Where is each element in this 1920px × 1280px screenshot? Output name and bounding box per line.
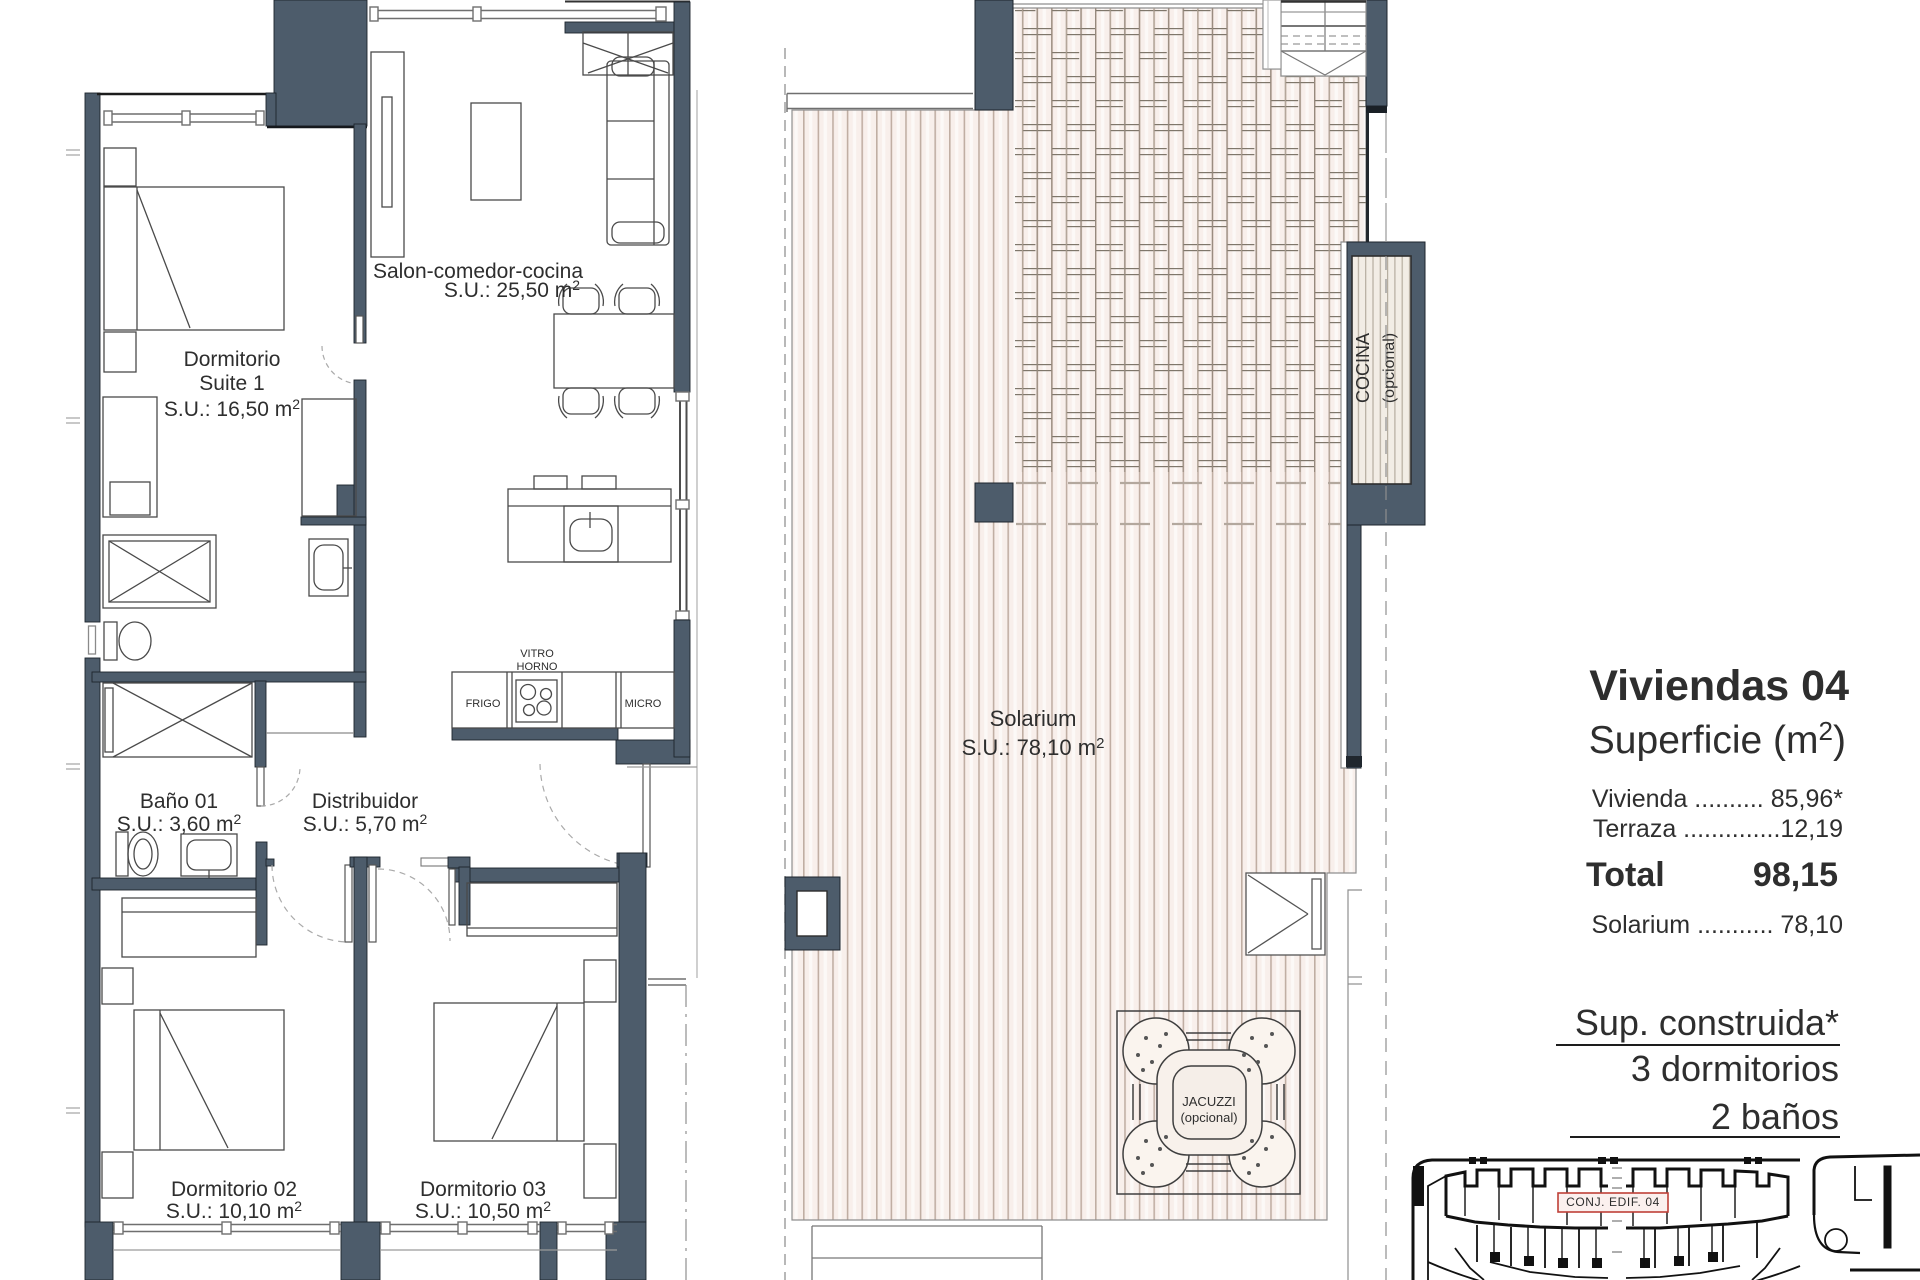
- svg-text:S.U.: 16,50 m2: S.U.: 16,50 m2: [164, 396, 300, 421]
- svg-text:98,15: 98,15: [1753, 856, 1838, 894]
- svg-text:FRIGO: FRIGO: [466, 698, 501, 710]
- svg-text:Vivienda .......... 85,96*: Vivienda .......... 85,96*: [1592, 785, 1843, 813]
- svg-text:Suite 1: Suite 1: [199, 372, 264, 395]
- svg-text:CONJ. EDIF. 04: CONJ. EDIF. 04: [1566, 1195, 1660, 1209]
- svg-text:Baño 01: Baño 01: [140, 790, 218, 813]
- svg-text:Sup. construida*: Sup. construida*: [1575, 1002, 1839, 1043]
- svg-text:Dormitorio 02: Dormitorio 02: [171, 1178, 297, 1201]
- svg-text:Viviendas 04: Viviendas 04: [1589, 662, 1849, 710]
- svg-text:(opcional): (opcional): [1381, 333, 1398, 403]
- svg-text:VITRO: VITRO: [520, 648, 554, 660]
- svg-text:Terraza ..............12,19: Terraza ..............12,19: [1593, 815, 1843, 843]
- svg-text:S.U.: 78,10 m2: S.U.: 78,10 m2: [962, 735, 1105, 760]
- svg-text:S.U.: 10,50 m2: S.U.: 10,50 m2: [415, 1198, 551, 1223]
- svg-text:HORNO: HORNO: [517, 661, 558, 673]
- svg-text:S.U.: 25,50 m2: S.U.: 25,50 m2: [444, 277, 580, 302]
- svg-text:Distribuidor: Distribuidor: [312, 790, 418, 813]
- svg-text:(opcional): (opcional): [1180, 1110, 1237, 1125]
- svg-text:Superficie (m2): Superficie (m2): [1589, 716, 1846, 762]
- svg-text:MICRO: MICRO: [625, 698, 662, 710]
- svg-text:Solarium ........... 78,10: Solarium ........... 78,10: [1591, 911, 1843, 939]
- svg-text:Solarium: Solarium: [990, 706, 1077, 731]
- svg-text:S.U.: 5,70 m2: S.U.: 5,70 m2: [303, 811, 428, 836]
- svg-text:S.U.: 10,10 m2: S.U.: 10,10 m2: [166, 1198, 302, 1223]
- svg-text:COCINA: COCINA: [1353, 333, 1373, 403]
- svg-text:S.U.: 3,60 m2: S.U.: 3,60 m2: [117, 811, 242, 836]
- svg-text:Dormitorio 03: Dormitorio 03: [420, 1178, 546, 1201]
- svg-text:JACUZZI: JACUZZI: [1182, 1094, 1235, 1109]
- svg-text:2 baños: 2 baños: [1711, 1096, 1839, 1137]
- svg-text:Dormitorio: Dormitorio: [184, 348, 281, 371]
- svg-text:Total: Total: [1586, 856, 1665, 894]
- svg-text:3 dormitorios: 3 dormitorios: [1631, 1048, 1839, 1089]
